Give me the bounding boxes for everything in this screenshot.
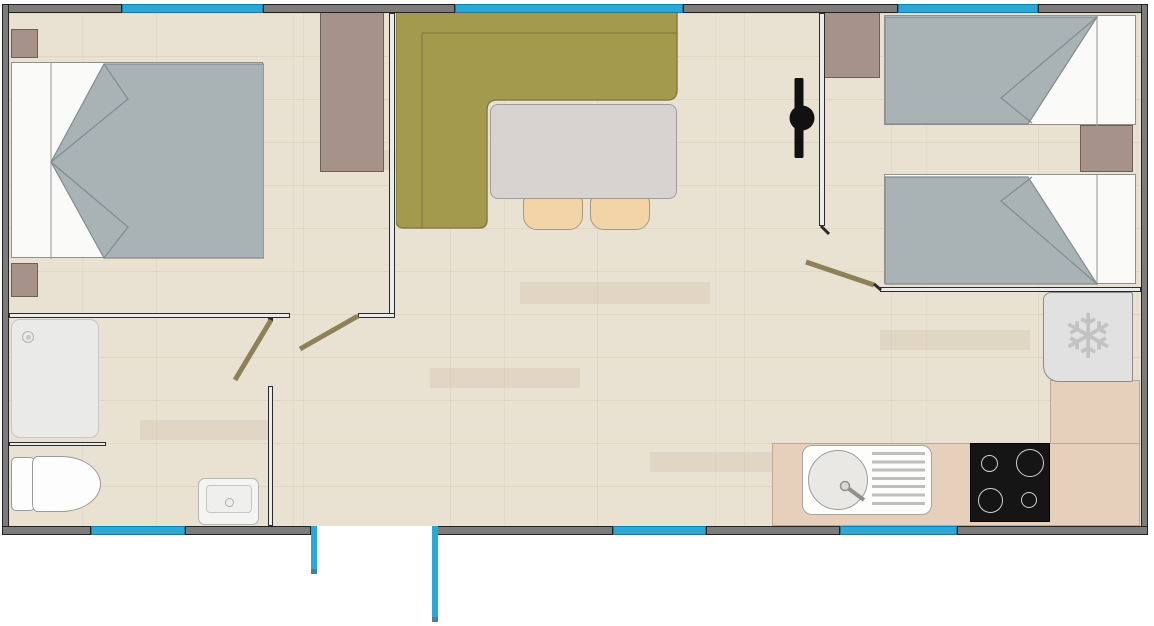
entrance-door-tip — [311, 569, 317, 574]
wall-top — [1038, 4, 1148, 13]
wall-bottom — [437, 526, 613, 535]
wall-bathroom-right — [268, 386, 274, 526]
kitchen-sink-drainboard — [872, 452, 925, 508]
burner — [1021, 492, 1037, 508]
wall-bedroom1-bottom — [9, 313, 290, 318]
wall-top — [263, 4, 455, 13]
wall-bedroom2-bottom — [880, 287, 1141, 292]
wall-shower-partition — [9, 442, 106, 446]
entrance-door-leaf — [432, 526, 438, 621]
window — [840, 526, 957, 535]
wall-bottom — [957, 526, 1148, 535]
burner — [1016, 449, 1044, 477]
wall-bottom — [706, 526, 840, 535]
double-bed-bedding — [12, 63, 264, 259]
floor-plank-shade — [430, 368, 580, 388]
kitchen-counter-right — [1050, 380, 1140, 444]
washbasin — [198, 478, 259, 525]
nightstand — [11, 29, 38, 58]
single-bed-top-bedding — [885, 16, 1137, 126]
entrance-door-leaf — [311, 526, 317, 573]
kitchen-sink-basin — [808, 450, 868, 510]
fridge-snowflake-icon: ❄ — [1062, 306, 1114, 368]
entrance-door-tip — [432, 617, 438, 622]
wall-top — [2, 4, 122, 13]
floor-plank-shade — [880, 330, 1030, 350]
floor-plank-shade — [140, 420, 270, 440]
dining-chair — [523, 196, 583, 230]
fridge: ❄ — [1043, 292, 1133, 382]
shower-tray — [11, 319, 99, 438]
single-bed-bottom — [884, 174, 1136, 284]
door-jamb — [268, 317, 273, 321]
dining-table — [490, 104, 677, 199]
burner — [978, 488, 1003, 513]
burner — [981, 455, 998, 472]
wardrobe — [822, 12, 880, 78]
shower-drain-dot — [26, 335, 31, 340]
window — [613, 526, 706, 535]
wall-left — [2, 4, 9, 535]
washbasin-faucet — [225, 498, 234, 507]
wall-right — [1141, 4, 1148, 535]
floor-plan: ❄ — [0, 0, 1154, 626]
single-bed-bottom-bedding — [885, 175, 1137, 285]
window — [122, 4, 263, 13]
nightstand — [11, 263, 38, 297]
wall-bottom — [2, 526, 91, 535]
wall-bottom — [185, 526, 311, 535]
dining-chair — [590, 196, 650, 230]
floor-plank-shade — [520, 282, 710, 304]
window — [91, 526, 185, 535]
wall-top — [683, 4, 898, 13]
wall-bedroom1-right — [389, 13, 395, 317]
wall-bedroom2-left — [819, 13, 825, 226]
window — [455, 4, 683, 13]
wall-bedroom1-bottom-corner — [358, 313, 395, 318]
single-bed-top — [884, 15, 1136, 125]
stove — [970, 443, 1050, 522]
window — [898, 4, 1038, 13]
wardrobe — [320, 11, 384, 172]
nightstand — [1080, 125, 1133, 172]
double-bed — [11, 62, 263, 258]
